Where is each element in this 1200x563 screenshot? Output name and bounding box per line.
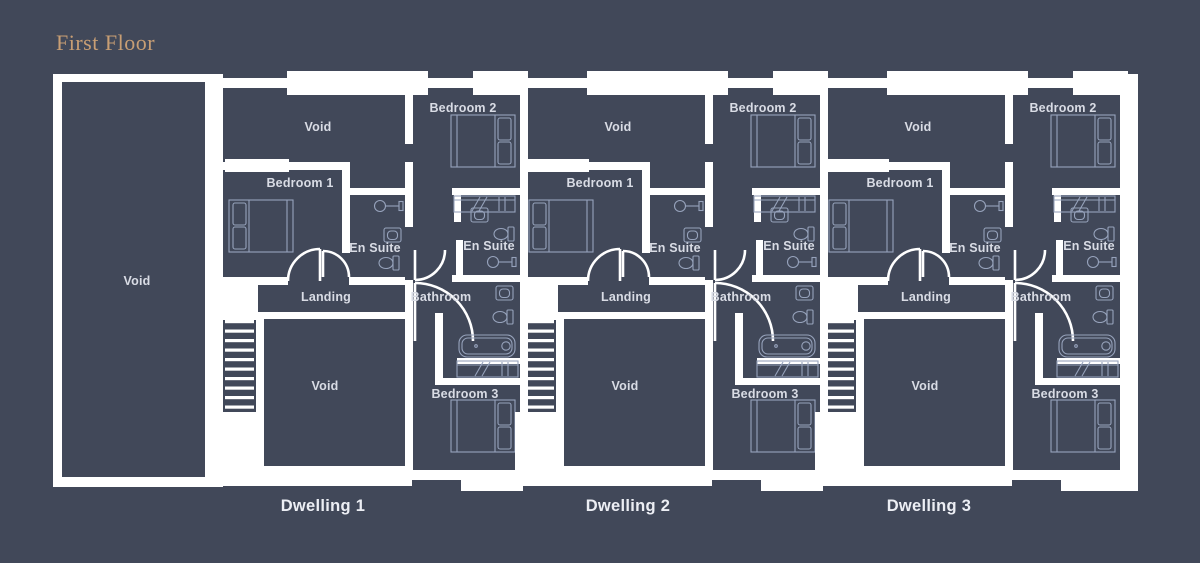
room-label-bathroom: Bathroom xyxy=(1011,290,1072,304)
outer-right-wall xyxy=(1120,74,1138,491)
room-label-bedroom-2: Bedroom 2 xyxy=(429,101,496,115)
room-label-bedroom-2: Bedroom 2 xyxy=(729,101,796,115)
room-label-bedroom-1: Bedroom 1 xyxy=(866,176,933,190)
room-label-void: Void xyxy=(124,274,151,288)
room-label-en-suite-1: En Suite xyxy=(349,241,401,255)
room-label-bedroom-1: Bedroom 1 xyxy=(266,176,333,190)
floor-plan: Void Void Bedroom 1 En Suite Bedroom 2 E… xyxy=(0,0,1200,563)
room-label-en-suite-2: En Suite xyxy=(463,239,515,253)
room-label-en-suite-2: En Suite xyxy=(1063,239,1115,253)
room-label-void-lower: Void xyxy=(612,379,639,393)
room-label-bedroom-3: Bedroom 3 xyxy=(1031,387,1098,401)
dwelling-3-name: Dwelling 3 xyxy=(887,497,972,515)
dwelling-2-plan xyxy=(515,71,828,491)
room-label-void-lower: Void xyxy=(312,379,339,393)
room-label-en-suite-1: En Suite xyxy=(649,241,701,255)
room-label-void-upper: Void xyxy=(305,120,332,134)
room-label-bathroom: Bathroom xyxy=(711,290,772,304)
left-void-room: Void xyxy=(53,74,223,487)
floor-plan-page: First Floor xyxy=(0,0,1200,563)
room-label-bathroom: Bathroom xyxy=(411,290,472,304)
dwelling-1-name: Dwelling 1 xyxy=(281,497,366,515)
dwelling-2-name: Dwelling 2 xyxy=(586,497,671,515)
room-label-landing: Landing xyxy=(301,290,351,304)
room-label-void-lower: Void xyxy=(912,379,939,393)
dwelling-3-plan xyxy=(815,71,1128,491)
room-label-void-upper: Void xyxy=(905,120,932,134)
room-label-bedroom-3: Bedroom 3 xyxy=(431,387,498,401)
room-label-bedroom-1: Bedroom 1 xyxy=(566,176,633,190)
room-label-bedroom-3: Bedroom 3 xyxy=(731,387,798,401)
room-label-landing: Landing xyxy=(601,290,651,304)
room-label-en-suite-2: En Suite xyxy=(763,239,815,253)
room-label-bedroom-2: Bedroom 2 xyxy=(1029,101,1096,115)
room-label-en-suite-1: En Suite xyxy=(949,241,1001,255)
room-label-void-upper: Void xyxy=(605,120,632,134)
dwelling-1-plan xyxy=(215,71,528,491)
room-label-landing: Landing xyxy=(901,290,951,304)
